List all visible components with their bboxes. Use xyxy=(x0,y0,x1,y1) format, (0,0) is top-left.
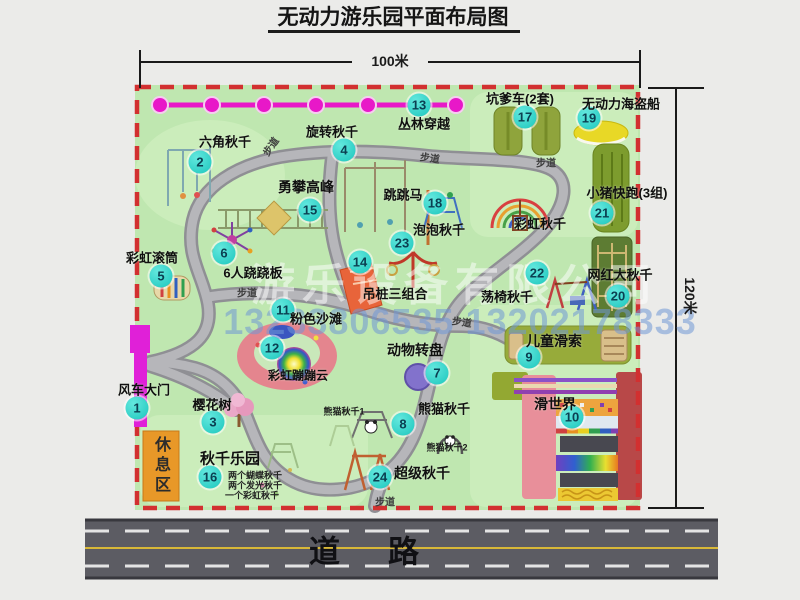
attraction-label-11: 粉色沙滩 xyxy=(290,309,342,328)
attraction-label-3: 樱花树 xyxy=(192,395,231,414)
attraction-label-18: 跳跳马 xyxy=(383,185,422,204)
footpath-label: 步道 xyxy=(375,494,395,509)
attraction-label-8: 熊猫秋千 xyxy=(418,399,470,418)
attraction-label-15: 勇攀高峰 xyxy=(278,177,334,197)
attraction-badge-4: 4 xyxy=(333,139,356,162)
attraction-badge-16: 16 xyxy=(199,466,222,489)
attraction-badge-23: 23 xyxy=(391,232,414,255)
title-underline xyxy=(268,30,520,33)
attraction-label-1: 风车大门 xyxy=(118,380,170,399)
rest-area-label: 休息区 xyxy=(148,436,172,496)
footpath-label: 步道 xyxy=(536,155,556,170)
attraction-label-22: 荡椅秋千 xyxy=(481,287,533,306)
road-label: 道路 xyxy=(309,527,467,572)
attraction-label-13: 丛林穿越 xyxy=(398,114,450,133)
dimension-height-label: 120米 xyxy=(680,273,700,318)
attraction-label-21: 小猪快跑(3组) xyxy=(587,183,668,202)
attraction-label-7: 动物转盘 xyxy=(387,340,443,360)
attraction-badge-5: 5 xyxy=(150,265,173,288)
dimension-width-label: 100米 xyxy=(367,51,412,71)
panda-swing-2-label: 熊猫秋千2 xyxy=(426,441,467,454)
attraction-label-5: 彩虹滚筒 xyxy=(126,248,178,267)
attraction-badge-2: 2 xyxy=(189,151,212,174)
attraction-badge-24: 24 xyxy=(369,466,392,489)
attraction-badge-1: 1 xyxy=(126,397,149,420)
attraction-badge-6: 6 xyxy=(213,242,236,265)
attraction-badge-8: 8 xyxy=(392,413,415,436)
attraction-badge-7: 7 xyxy=(426,362,449,385)
attraction-label-16: 秋千乐园 xyxy=(200,448,260,469)
attraction-label-2: 六角秋千 xyxy=(199,132,251,151)
attraction-label-17: 坑爹车(2套) xyxy=(486,89,554,108)
footpath-label: 步道 xyxy=(451,312,473,330)
park-layout-map: 无动力游乐园平面布局图 100米 120米 游乐设备有限公司 132338065… xyxy=(0,0,800,600)
attraction-badge-14: 14 xyxy=(349,251,372,274)
attraction-badge-15: 15 xyxy=(299,199,322,222)
attraction-label-19: 无动力海盗船 xyxy=(582,94,660,113)
panda-swing-1-label: 熊猫秋千1 xyxy=(323,405,364,418)
attraction-badge-20: 20 xyxy=(607,285,630,308)
attraction-label-23: 泡泡秋千 xyxy=(413,220,465,239)
footpath-label: 步道 xyxy=(237,285,257,300)
attraction-badge-21: 21 xyxy=(591,202,614,225)
attraction-label-20: 网红大秋千 xyxy=(587,265,652,284)
attraction-label-12: 彩虹蹦蹦云 xyxy=(268,367,328,384)
attraction-label-10: 滑世界 xyxy=(534,394,576,414)
attraction-badge-17: 17 xyxy=(514,106,537,129)
swing-park-note-3: 一个彩虹秋千 xyxy=(225,489,279,502)
footpath-label: 步道 xyxy=(419,148,441,166)
attraction-label-9: 儿童滑索 xyxy=(526,331,582,351)
attraction-label-6: 6人跷跷板 xyxy=(223,263,282,282)
attraction-badge-12: 12 xyxy=(261,337,284,360)
page-title: 无动力游乐园平面布局图 xyxy=(278,1,509,31)
attraction-badge-3: 3 xyxy=(202,411,225,434)
attraction-label-4: 旋转秋千 xyxy=(306,122,358,141)
attraction-badge-18: 18 xyxy=(424,192,447,215)
attraction-badge-22: 22 xyxy=(526,262,549,285)
attraction-label-14: 吊桩三组合 xyxy=(362,284,427,303)
attraction-label-24: 超级秋千 xyxy=(394,463,450,483)
rainbow-swing-label: 彩虹秋千 xyxy=(514,214,566,233)
